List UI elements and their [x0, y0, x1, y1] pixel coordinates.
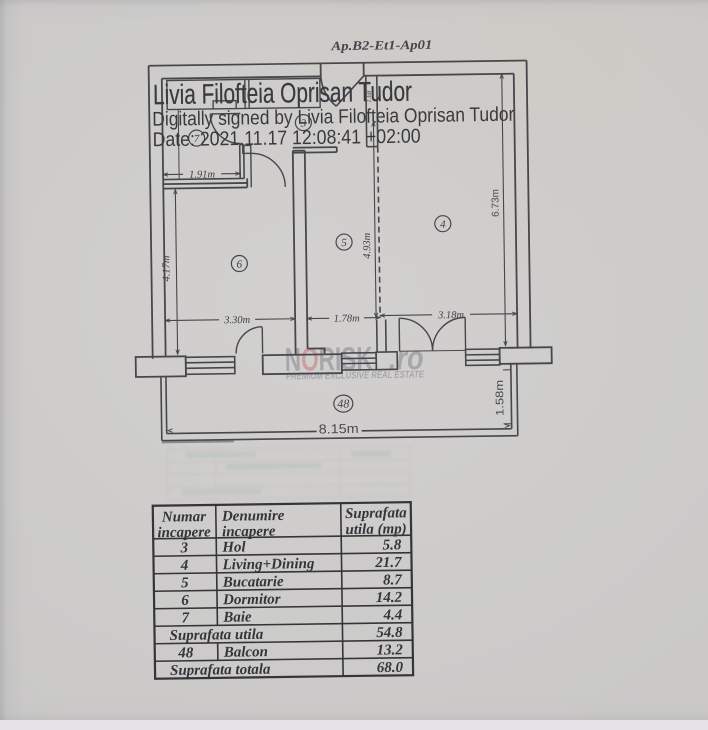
svg-text:utila (mp): utila (mp): [345, 521, 406, 538]
svg-text:48: 48: [337, 397, 349, 411]
svg-text:Numar: Numar: [161, 509, 207, 526]
svg-text:3.30m: 3.30m: [223, 315, 251, 326]
svg-text:54.8: 54.8: [376, 625, 403, 641]
svg-text:7: 7: [181, 610, 189, 626]
svg-text:Suprafata utila: Suprafata utila: [169, 627, 263, 644]
svg-text:Baie: Baie: [222, 609, 252, 625]
svg-text:6.73m: 6.73m: [490, 189, 501, 217]
svg-text:Suprafata: Suprafata: [345, 505, 407, 522]
svg-text:4.93m: 4.93m: [362, 232, 373, 259]
svg-text:4.4: 4.4: [382, 607, 402, 623]
svg-text:Hol: Hol: [221, 539, 246, 555]
svg-text:21.7: 21.7: [374, 555, 402, 571]
svg-text:48: 48: [177, 645, 194, 661]
svg-text:68.0: 68.0: [377, 660, 404, 676]
svg-text:Suprafata totala: Suprafata totala: [170, 662, 271, 679]
svg-text:5: 5: [181, 575, 189, 591]
svg-text:PREMIUM EXCLUSIVE REAL ESTATE: PREMIUM EXCLUSIVE REAL ESTATE: [286, 369, 424, 382]
svg-text:Ap.B2-Et1-Ap01: Ap.B2-Et1-Ap01: [330, 37, 432, 53]
svg-text:6: 6: [181, 593, 189, 609]
svg-text:Balcon: Balcon: [223, 644, 268, 661]
svg-text:8.7: 8.7: [383, 572, 402, 588]
svg-text:1.91m: 1.91m: [189, 169, 216, 180]
svg-text:14.2: 14.2: [376, 590, 403, 606]
svg-text:3.18m: 3.18m: [437, 310, 465, 321]
svg-text:incapere: incapere: [222, 524, 276, 541]
svg-text:Denumire: Denumire: [221, 508, 285, 525]
svg-text:Bucatarie: Bucatarie: [222, 574, 284, 591]
svg-text:Living+Dining: Living+Dining: [221, 556, 315, 573]
svg-text:5.8: 5.8: [382, 537, 401, 553]
svg-text:1.78m: 1.78m: [334, 313, 361, 324]
svg-text:Dormitor: Dormitor: [222, 591, 281, 608]
svg-text:4: 4: [440, 219, 446, 231]
svg-text:3: 3: [179, 540, 188, 556]
svg-text:13.2: 13.2: [376, 642, 403, 658]
svg-text:Date: 2021.11.17 12:08:41 +02:: Date: 2021.11.17 12:08:41 +02:00: [152, 125, 420, 151]
svg-text:5: 5: [341, 237, 347, 249]
svg-text:4.17m: 4.17m: [161, 255, 172, 282]
svg-text:6: 6: [237, 258, 243, 270]
svg-text:1.58m: 1.58m: [494, 380, 507, 416]
svg-text:8.15m: 8.15m: [319, 421, 359, 437]
svg-text:4: 4: [180, 558, 189, 574]
svg-text:incapere: incapere: [157, 524, 211, 541]
